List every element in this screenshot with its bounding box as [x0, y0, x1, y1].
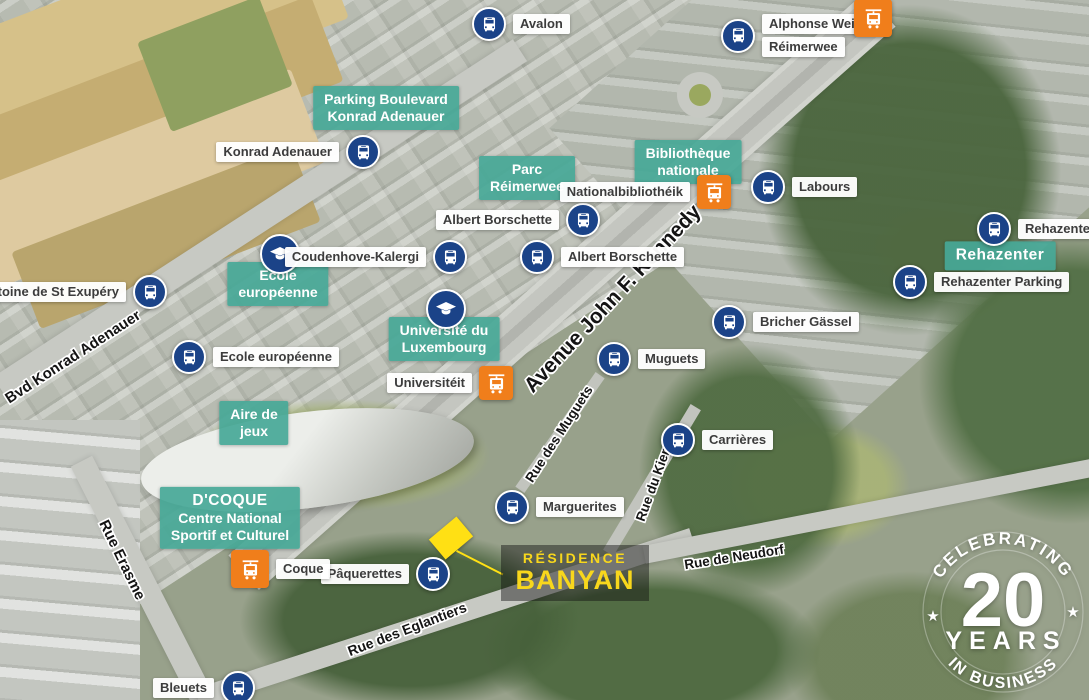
stop-label: Albert Borschette: [561, 247, 684, 267]
bus-stop-bricher-gassel: Bricher Gässel: [712, 305, 859, 339]
stop-label: Coudenhove-Kalergi: [285, 247, 426, 267]
bus-icon: [433, 240, 467, 274]
poi-line: Rehazenter: [956, 246, 1045, 264]
stop-label: Albert Borschette: [436, 210, 559, 230]
poi-label-dcoque: D'COQUE Centre National Sportif et Cultu…: [160, 487, 300, 549]
bus-stop-bleuets: Bleuets: [153, 671, 255, 700]
stop-label: Universitéit: [387, 373, 472, 393]
poi-line: Konrad Adenauer: [324, 108, 448, 125]
stop-label: Bleuets: [153, 678, 214, 698]
bus-icon: [597, 342, 631, 376]
bus-stop-konrad-adenauer: Konrad Adenauer: [216, 135, 380, 169]
bus-icon: [721, 19, 755, 53]
poi-line: Parking Boulevard: [324, 91, 448, 108]
bus-stop-albert-borschette-2: Albert Borschette: [520, 240, 684, 274]
stop-label: Nationalbibliothéik: [560, 182, 690, 202]
stop-label: Réimerwee: [762, 37, 845, 57]
bus-icon: [712, 305, 746, 339]
poi-line: Parc: [490, 161, 564, 178]
star-icon: ★: [1066, 604, 1079, 621]
residence-line1: RÉSIDENCE: [505, 550, 645, 566]
poi-line: jeux: [230, 423, 277, 440]
poi-line: Bibliothèque: [646, 145, 731, 162]
bus-icon: [133, 275, 167, 309]
poi-line: Centre National: [171, 510, 289, 527]
stop-label: Muguets: [638, 349, 705, 369]
bus-stop-antoine-de-st-exupery: Antoine de St Exupéry: [0, 275, 167, 309]
bus-icon: [661, 423, 695, 457]
bus-icon: [346, 135, 380, 169]
badge-arc-bottom: IN BUSINESS: [945, 654, 1062, 692]
stop-label: Rehazenter: [1018, 219, 1089, 239]
bus-stop-rehazenter: Rehazenter: [977, 212, 1089, 246]
tram-icon: [854, 0, 892, 37]
poi-line: D'COQUE: [171, 492, 289, 510]
stop-label: Rehazenter Parking: [934, 272, 1069, 292]
poi-line: Luxembourg: [400, 339, 489, 356]
bus-stop-ecole-europeenne: Ecole européenne: [172, 340, 339, 374]
bus-icon: [495, 490, 529, 524]
stop-label: Konrad Adenauer: [216, 142, 339, 162]
stop-label: Labours: [792, 177, 857, 197]
bus-stop-avalon: Avalon: [472, 7, 570, 41]
residence-banyan-label: RÉSIDENCE BANYAN: [501, 545, 649, 601]
bus-stop-marguerites: Marguerites: [495, 490, 624, 524]
tram-icon: [697, 175, 731, 209]
poi-label-parking-boulevard: Parking Boulevard Konrad Adenauer: [313, 86, 459, 130]
poi-line: européenne: [238, 284, 317, 301]
stop-label: Carrières: [702, 430, 773, 450]
stop-label: Antoine de St Exupéry: [0, 282, 126, 302]
residence-line2: BANYAN: [505, 567, 645, 594]
bus-icon: [221, 671, 255, 700]
bus-icon: [472, 7, 506, 41]
bus-icon: [751, 170, 785, 204]
stop-label: Avalon: [513, 14, 570, 34]
map-canvas: Avenue John F. Kennedy Bvd Konrad Adenau…: [0, 0, 1089, 700]
bus-stop-rehazenter-parking: Rehazenter Parking: [893, 265, 1069, 299]
stop-label: Coque: [276, 559, 330, 579]
roundabout: [677, 72, 723, 118]
stop-label: Pâquerettes: [321, 564, 409, 584]
stop-label: Marguerites: [536, 497, 624, 517]
bus-stop-labours: Labours: [751, 170, 857, 204]
bus-icon: [893, 265, 927, 299]
poi-line: Aire de: [230, 406, 277, 423]
poi-label-aire-de-jeux: Aire de jeux: [219, 401, 288, 445]
tram-stop-coque: Coque: [231, 550, 330, 588]
bus-icon: [416, 557, 450, 591]
star-icon: ★: [926, 608, 939, 625]
poi-line: Sportif et Culturel: [171, 527, 289, 544]
bus-stop-muguets: Muguets: [597, 342, 705, 376]
stop-label: Ecole européenne: [213, 347, 339, 367]
tram-stop-universiteit: Universitéit: [387, 366, 513, 400]
tram-stop-nationalbibliotheik: Nationalbibliothéik: [560, 175, 731, 209]
bus-icon: [172, 340, 206, 374]
tram-icon: [231, 550, 269, 588]
tram-icon: [479, 366, 513, 400]
anniversary-badge: CELEBRATING 20 YEARS IN BUSINESS ★ ★: [903, 508, 1089, 700]
bus-stop-coudenhove-kalergi: Coudenhove-Kalergi: [285, 240, 467, 274]
poi-line: Réimerwee: [490, 178, 564, 195]
graduation-cap-icon: [426, 289, 466, 329]
badge-years: YEARS: [945, 627, 1066, 655]
bus-icon: [977, 212, 1011, 246]
bus-stop-paquerettes: Pâquerettes: [321, 557, 450, 591]
bus-icon: [520, 240, 554, 274]
bus-stop-carrieres: Carrières: [661, 423, 773, 457]
stop-label: Bricher Gässel: [753, 312, 859, 332]
